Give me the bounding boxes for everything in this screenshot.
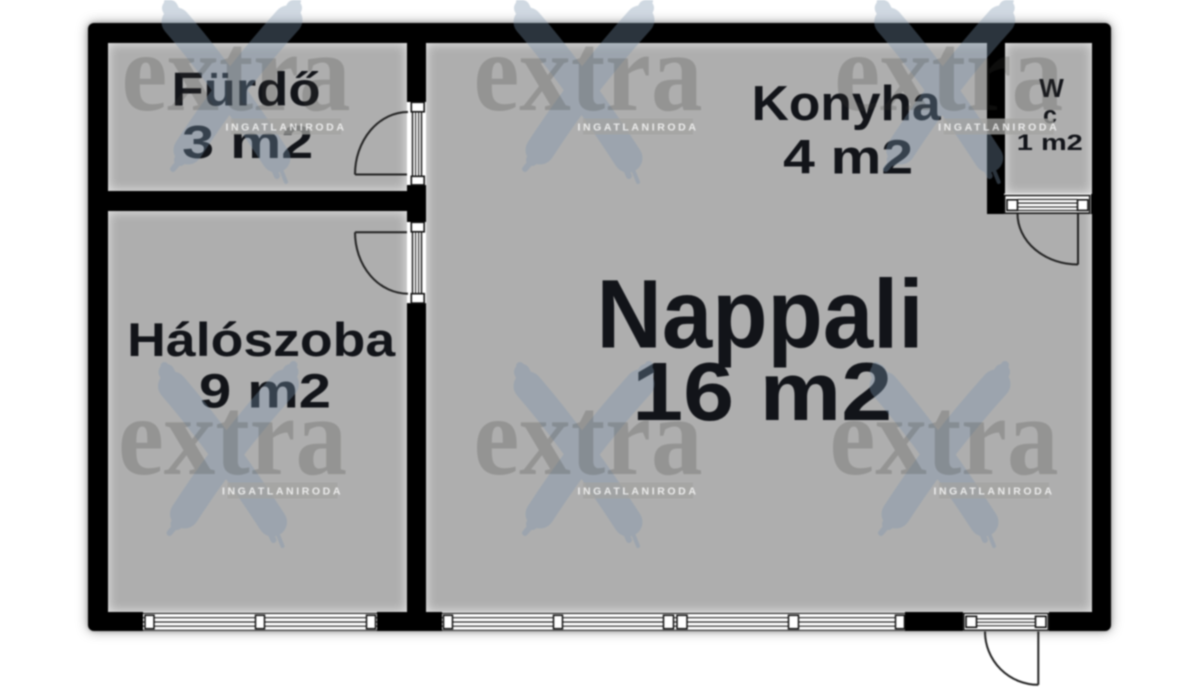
- svg-text:Hálószoba: Hálószoba: [127, 313, 396, 366]
